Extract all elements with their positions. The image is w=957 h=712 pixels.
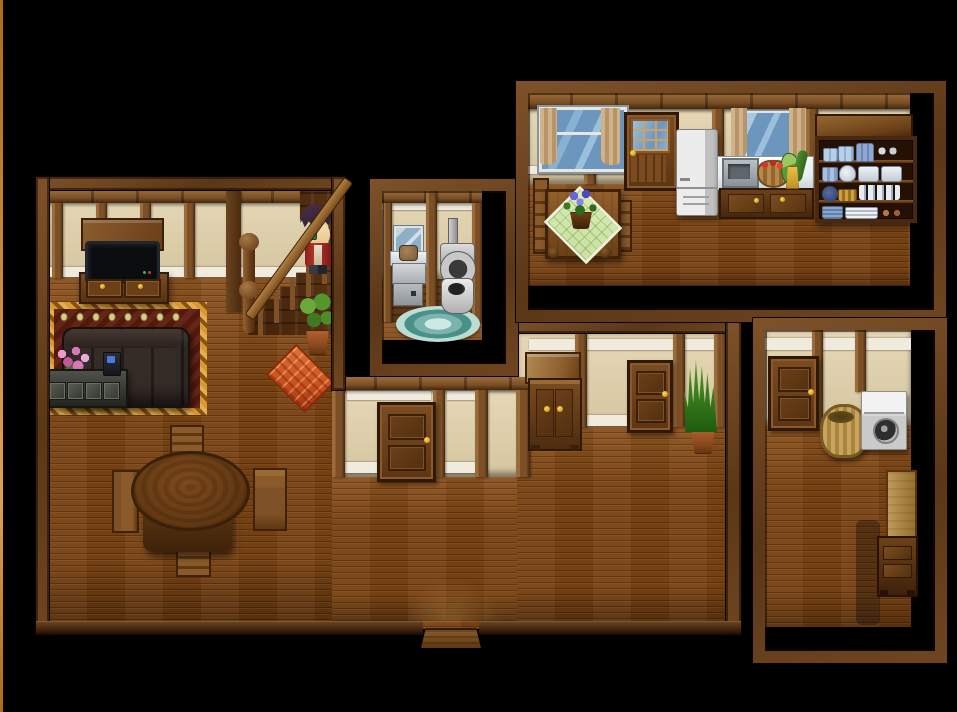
washer-porthole [873,418,899,444]
door-knob [630,150,636,156]
doorway-floor [423,621,479,629]
bottom-frame-right [479,621,741,635]
door-knob [808,389,814,395]
cheese-wedge [786,166,799,189]
game-viewport [0,0,957,712]
newel-knob [239,233,259,251]
hall-cabinet[interactable] [528,378,582,451]
toilet-bowl-hole [448,283,465,295]
wall-post [855,330,866,392]
curtain-left [540,108,557,165]
doorway-light [405,578,500,621]
blue-jars [822,167,838,182]
blue-flower [558,186,602,216]
television[interactable] [85,241,160,284]
door-glass-grid [631,119,670,153]
lower-hall-wall-cap [332,377,530,390]
wall-rail [529,339,726,350]
wall-post [226,190,241,312]
hall-door[interactable] [627,360,673,433]
door-knob [662,391,668,397]
cabinet-foot [531,445,540,451]
door-knob [424,437,430,443]
living-room-wall-lintel [49,190,332,203]
cabinet-door [536,389,554,437]
goblets [875,145,899,160]
bottom-frame-left [36,621,423,635]
wall-post [184,203,195,278]
vanity-lower-cabinet[interactable] [393,283,423,306]
refrigerator[interactable] [676,129,718,216]
living-room-frame-left [36,177,49,635]
kitchen-sink[interactable] [722,158,759,188]
hero-trim [314,245,322,265]
tall-stool-base[interactable] [877,536,918,597]
drawer-knob [138,284,143,289]
blue-cups [823,148,838,162]
cabinet-knob [780,197,785,202]
hero-legs [309,265,327,274]
tv-power-led [143,271,146,274]
stool-foot [880,590,888,595]
basket-opening [828,411,854,423]
hall-door-lower[interactable] [377,402,436,482]
hallway-frame-top [517,320,741,333]
cabinet-panel [770,194,806,213]
cabinet-knob [754,198,759,203]
hallway-frame-right [726,320,741,635]
fridge-seam [677,187,717,189]
washing-machine[interactable] [861,391,907,450]
door-panel [388,414,426,440]
wall-rail [347,391,431,400]
wall-post [714,333,726,427]
door-panel [778,367,811,392]
dish-shelf[interactable] [815,136,917,223]
kitchen-glass-door[interactable] [624,112,679,191]
wall-post [332,390,345,477]
tv-stand-drawer[interactable] [86,279,123,298]
cabinet-knob [544,406,550,412]
cabinet-drawer[interactable] [85,382,102,400]
glass-jar [881,166,902,182]
vanity-handle [411,291,416,296]
cabinet-drawer[interactable] [103,382,120,400]
door-panel [636,399,666,423]
wall-post [52,203,63,278]
laundry-door[interactable] [768,356,819,431]
stool-drawer [883,564,912,578]
white-pitcher [839,165,856,182]
radio-screen [107,356,115,363]
fridge-handle [680,178,690,181]
door-panel [388,445,426,471]
wall-rail [765,338,911,350]
cabinet-foot [570,445,579,451]
wall-post [426,191,437,322]
brown-bowls [880,208,903,217]
wall-post [673,333,685,427]
washer-lid-seam [864,412,904,414]
stool-drawer [883,546,912,560]
entry-step[interactable] [421,628,481,648]
living-room-frame-top [36,177,345,190]
diamond-rug [262,349,334,405]
glass-jar [858,166,879,182]
sink-basin [728,164,750,179]
door-planks [631,155,666,182]
drawer-knob [100,284,105,289]
cabinet-door [555,389,573,437]
door-panel [778,396,811,421]
bottle-row [859,185,900,200]
left-edge-strip [0,0,3,712]
cabinet-drawer[interactable] [49,382,66,400]
wall-rail [445,462,475,473]
tv-stand-drawer[interactable] [124,279,161,298]
dining-chair [253,468,287,531]
cabinet-drawer[interactable] [67,382,84,400]
tall-stool-top [886,470,917,542]
cabinet-panel [728,194,764,213]
curtain-left [731,108,747,158]
ornate-rug-band [56,310,184,324]
stair-baluster [274,291,279,323]
blue-cups [838,146,854,162]
cart-wheel [548,247,559,258]
counter-cabinet[interactable] [719,188,814,219]
tomatoes [759,158,785,172]
white-plate-stack [845,207,878,219]
wall-rail [447,391,475,400]
vanity-cabinet[interactable] [392,263,426,284]
fridge-vent [683,196,709,198]
wall-post [475,390,488,477]
stool-foot [907,590,915,595]
blue-bottles [856,143,874,162]
blue-plate-stack [822,206,843,219]
blue-jug [822,186,838,202]
round-table-top [131,451,250,531]
hallway-room-floor [517,427,726,621]
gold-basket [838,189,857,202]
cabinet-knob [557,406,563,412]
curtain-right [601,108,620,165]
washbasin-pouch [399,245,418,261]
